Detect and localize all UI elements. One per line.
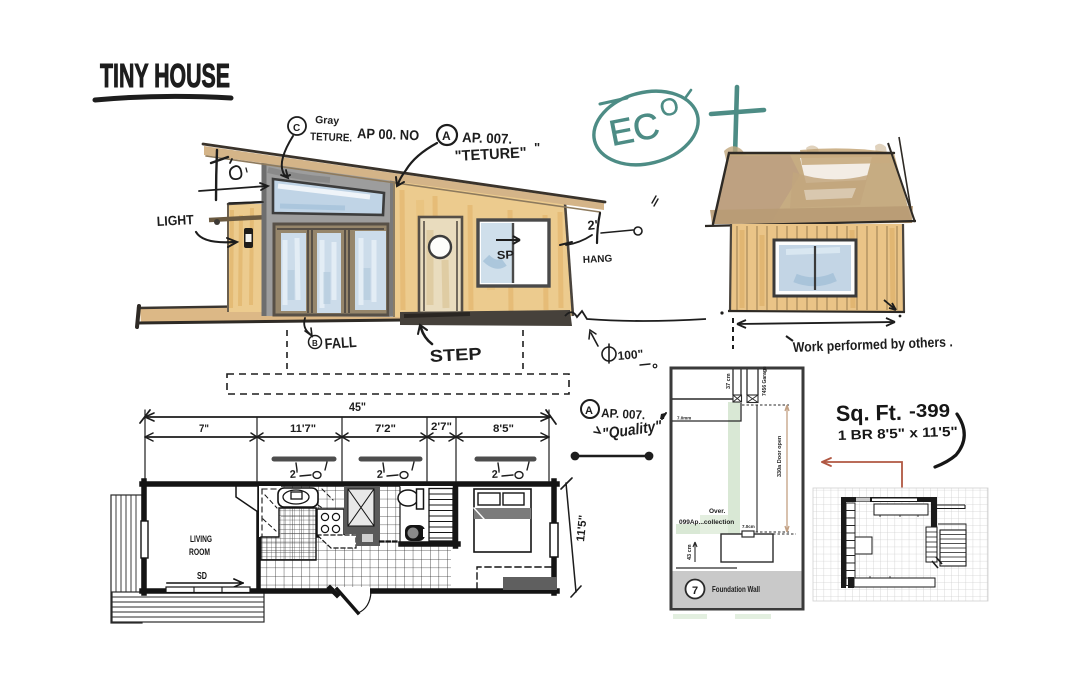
svg-text:"Quality": "Quality" (601, 418, 663, 443)
svg-text:AP. 007.: AP. 007. (462, 129, 513, 147)
svg-text:1 BR 8'5" x 11'5": 1 BR 8'5" x 11'5" (838, 424, 958, 443)
svg-text:Over.: Over. (709, 508, 725, 515)
svg-text:2': 2' (587, 217, 599, 233)
svg-text:Foundation Wall: Foundation Wall (712, 584, 760, 594)
svg-text:ROOM: ROOM (189, 547, 210, 558)
svg-text:TETURE.: TETURE. (310, 131, 352, 144)
svg-text:7": 7" (199, 423, 209, 435)
svg-text:7456 Garage: 7456 Garage (762, 366, 768, 396)
svg-text:330a Door open: 330a Door open (777, 435, 783, 477)
svg-text:2': 2' (289, 468, 299, 481)
svg-text:37 cm: 37 cm (726, 373, 732, 389)
svg-text:A: A (442, 129, 451, 143)
svg-text:099Ap...collection: 099Ap...collection (679, 519, 734, 526)
svg-text:SD: SD (197, 571, 207, 582)
svg-text:Work performed by others .: Work performed by others . (793, 333, 953, 355)
svg-text:2': 2' (376, 468, 386, 481)
svg-text:STEP: STEP (429, 344, 482, 366)
svg-text:7.0mm: 7.0mm (677, 416, 691, 421)
svg-text:A: A (585, 405, 593, 417)
svg-text:Sq. Ft.: Sq. Ft. (836, 400, 902, 426)
svg-text:LIVING: LIVING (190, 534, 212, 545)
svg-text:45": 45" (349, 400, 366, 414)
svg-text:-399: -399 (909, 401, 950, 421)
svg-text:7: 7 (692, 585, 698, 597)
svg-text:11'7": 11'7" (290, 423, 316, 435)
svg-text:7'2": 7'2" (375, 423, 396, 435)
svg-text:TINY HOUSE: TINY HOUSE (100, 57, 230, 94)
svg-text:11'5": 11'5" (575, 514, 590, 542)
svg-text:EC: EC (606, 104, 663, 154)
svg-text:SP: SP (497, 249, 515, 262)
svg-text:8'5": 8'5" (493, 423, 514, 435)
svg-text:AP 00. NO: AP 00. NO (357, 125, 420, 143)
svg-text:"TETURE": "TETURE" (454, 144, 527, 165)
svg-text:C: C (293, 123, 300, 134)
svg-text:": " (534, 140, 540, 155)
svg-text:100": 100" (617, 347, 644, 363)
svg-text:FALL: FALL (324, 334, 357, 353)
svg-text:43 cm: 43 cm (687, 544, 693, 560)
svg-text:2'7": 2'7" (431, 421, 452, 433)
svg-text:HANG: HANG (583, 253, 613, 266)
svg-text:7.0cm: 7.0cm (742, 524, 755, 529)
svg-text:Gray: Gray (315, 114, 340, 127)
svg-text:B: B (312, 339, 318, 348)
svg-text:2': 2' (491, 468, 501, 481)
svg-text:LIGHT: LIGHT (156, 212, 194, 229)
